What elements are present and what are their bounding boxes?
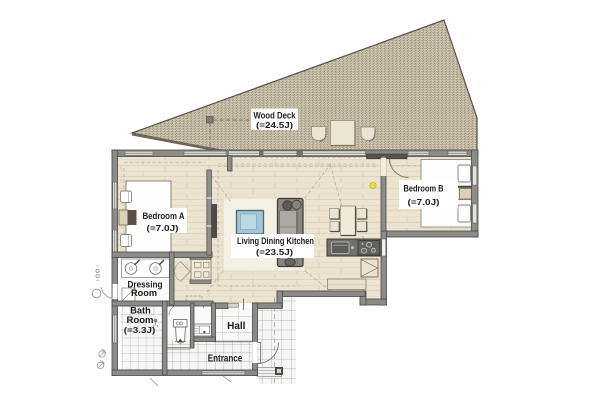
svg-text:Entrance: Entrance (208, 354, 243, 365)
svg-text:Bedroom A: Bedroom A (143, 211, 185, 221)
svg-text:(=24.5J): (=24.5J) (256, 120, 293, 130)
svg-text:Wood Deck: Wood Deck (254, 111, 297, 121)
svg-text:Room: Room (127, 315, 154, 325)
svg-text:(=3.3J): (=3.3J) (124, 325, 156, 335)
svg-text:Bath: Bath (130, 306, 151, 316)
svg-text:Living Dining Kitchen: Living Dining Kitchen (237, 236, 314, 246)
svg-text:Bedroom B: Bedroom B (404, 184, 444, 194)
svg-text:(=23.5J): (=23.5J) (256, 247, 293, 257)
svg-text:Room: Room (131, 288, 157, 298)
svg-text:(=7.0J): (=7.0J) (147, 223, 179, 233)
svg-text:Hall: Hall (227, 321, 246, 332)
svg-text:(=7.0J): (=7.0J) (408, 197, 440, 207)
